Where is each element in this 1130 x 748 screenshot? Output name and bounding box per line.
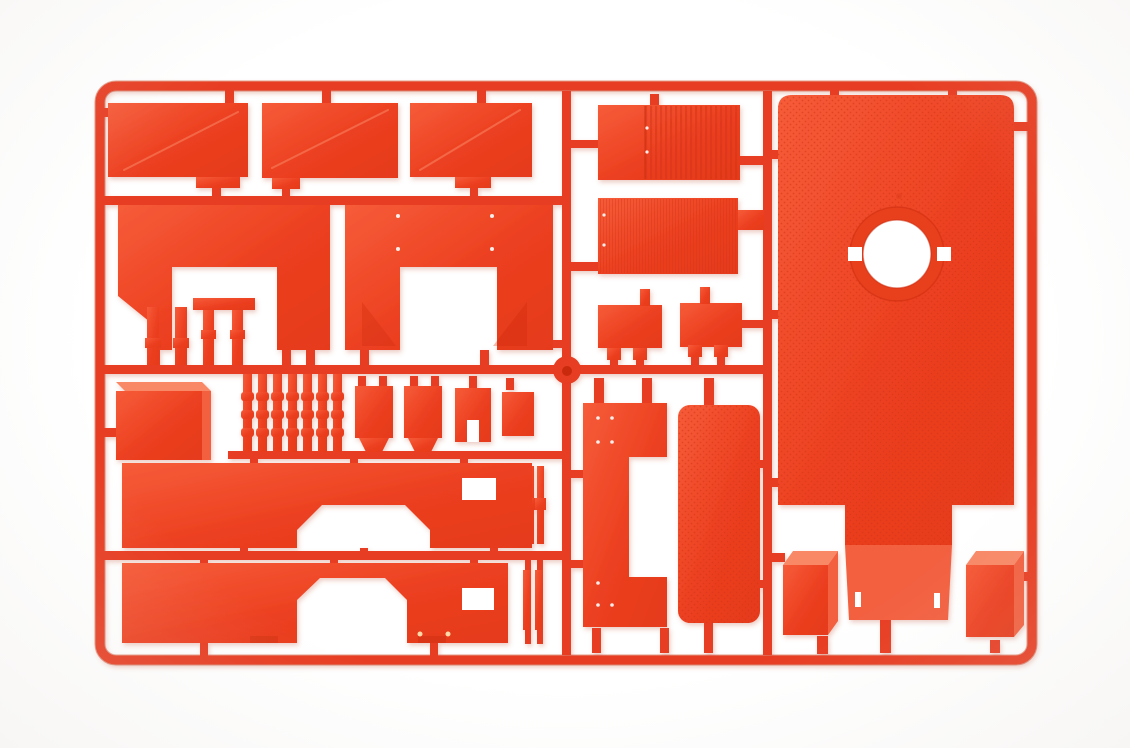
wall-rivet-hole <box>490 247 494 251</box>
gate-stub <box>506 378 514 390</box>
crate-left-front <box>783 565 828 635</box>
comb-bumps <box>316 392 329 401</box>
clip-1-slot <box>467 420 479 442</box>
gate-stub <box>553 340 562 348</box>
rod <box>535 570 543 630</box>
gate-stub <box>282 188 290 196</box>
wall-rivet-hole <box>396 214 400 218</box>
gate-stub <box>772 310 779 319</box>
panel-dimple <box>896 193 902 199</box>
gate-stub <box>765 553 785 562</box>
crate-left-side <box>828 551 838 635</box>
gate-stub <box>704 378 714 405</box>
u-bracket-bar <box>193 298 255 310</box>
comb-bumps <box>301 392 314 401</box>
gate-stub <box>431 376 439 386</box>
comb-bumps <box>256 428 269 437</box>
gate-stub <box>469 376 477 388</box>
gate-stub <box>571 470 583 478</box>
small-stand-2-foot <box>714 345 728 357</box>
gate-stub <box>525 560 531 570</box>
gate-stub <box>430 643 438 657</box>
bracket-1-foot <box>359 438 389 452</box>
panel-hole <box>596 581 600 585</box>
gate-stub <box>306 350 315 365</box>
panel-hole <box>645 126 648 129</box>
hanger-post-bump <box>173 338 189 348</box>
hanger-post <box>147 307 159 365</box>
gate-stub <box>537 630 543 644</box>
panel-hole <box>602 213 605 216</box>
gate-stub <box>772 150 779 159</box>
runner-horizontal-comb <box>228 451 564 459</box>
gate-stub <box>740 156 763 165</box>
bracket-2 <box>404 386 442 438</box>
roof-panel-3-tab <box>455 177 491 188</box>
comb-bumps <box>331 428 344 437</box>
wall-foot-ridge <box>418 636 446 643</box>
gate-stub <box>477 90 486 103</box>
crate-box-side <box>202 391 211 460</box>
gate-stub <box>470 188 478 196</box>
ring-notch <box>937 247 951 261</box>
rod-bump <box>535 498 546 510</box>
panel-hole <box>596 416 600 420</box>
comb-bumps <box>331 410 344 419</box>
gate-stub <box>571 560 583 568</box>
comb-bumps <box>286 428 299 437</box>
crate-right-front <box>966 565 1014 637</box>
gate-stub <box>212 187 221 196</box>
windshield-slot <box>934 593 940 608</box>
wall-rivet-hole <box>396 247 400 251</box>
gate-stub <box>650 94 659 105</box>
hanger-post <box>175 307 187 365</box>
gate-stub <box>525 630 531 644</box>
wall-foot-ridge <box>250 636 278 643</box>
shutter-door-divider <box>644 106 646 179</box>
small-stand-1-post <box>640 289 650 306</box>
lower-wall-2 <box>122 563 508 643</box>
small-stand-2-foot <box>688 345 702 357</box>
gate-stub <box>772 478 779 487</box>
gate-stub <box>410 376 418 386</box>
gate-stub <box>537 560 543 570</box>
gate-stub <box>592 628 601 653</box>
photo-canvas <box>0 0 1130 748</box>
panel-hole <box>596 440 600 444</box>
gate-stub <box>880 620 891 653</box>
small-stand-2 <box>680 303 742 347</box>
gate-stub <box>480 350 489 365</box>
panel-hole <box>602 243 605 246</box>
gate-stub <box>360 350 369 365</box>
small-stand-1-foot <box>633 348 647 360</box>
comb-bumps <box>241 410 254 419</box>
gate-stub <box>282 350 291 365</box>
windshield-slot <box>855 592 861 607</box>
panel-hole <box>610 603 614 607</box>
crate-right-top <box>966 551 1024 565</box>
ring-notch <box>848 247 862 261</box>
small-stand-1-foot <box>607 348 621 360</box>
comb-bumps <box>331 392 344 401</box>
sprue-group <box>100 86 1032 660</box>
gate-stub <box>742 320 763 328</box>
gate-stub <box>704 623 713 653</box>
runner-horizontal-middle <box>104 365 765 374</box>
paint-dot <box>446 632 451 637</box>
gate-stub <box>322 90 331 103</box>
gate-stub <box>379 376 387 386</box>
comb-bumps <box>256 392 269 401</box>
panel-hole <box>610 440 614 444</box>
u-bracket-bump <box>201 330 216 339</box>
gate-stub <box>642 378 652 404</box>
lower-wall-1-window <box>462 478 496 500</box>
bracket-2-foot <box>408 438 438 452</box>
roof-panel-2-tab <box>272 178 300 189</box>
comb-bumps <box>271 392 284 401</box>
gate-stub <box>817 636 828 654</box>
comb-bumps <box>316 410 329 419</box>
c-shaped-panel <box>583 403 667 627</box>
gate-stub <box>225 90 234 103</box>
clip-2 <box>502 392 534 436</box>
u-bracket-bump <box>230 330 245 339</box>
gate-stub <box>1014 122 1028 131</box>
roof-panel-1 <box>108 103 248 177</box>
gate-stub <box>990 640 1000 653</box>
bracket-1 <box>355 386 393 438</box>
comb-bumps <box>241 428 254 437</box>
roof-panel-1-tab <box>196 177 240 188</box>
big-door-panel-texture <box>778 95 1014 545</box>
small-stand-2-post <box>700 287 710 304</box>
rod <box>523 570 531 630</box>
comb-bumps <box>286 410 299 419</box>
crate-box-top <box>116 382 211 391</box>
gate-stub <box>360 548 368 556</box>
windshield-panel <box>845 545 952 620</box>
sprue-gate-ring-center <box>562 366 572 376</box>
panel-hole <box>596 603 600 607</box>
gate-stub <box>594 378 604 404</box>
lower-wall-2-window <box>462 588 494 610</box>
gate-stub <box>571 140 598 148</box>
shutter-door-ribs <box>645 106 739 179</box>
gate-stub <box>240 548 248 556</box>
ribbed-panel-step-tab <box>738 210 764 230</box>
gate-stub <box>104 428 116 437</box>
small-stand-1 <box>598 305 662 348</box>
comb-bumps <box>316 428 329 437</box>
comb-bumps <box>271 428 284 437</box>
ribbed-panel-ribs <box>600 199 737 273</box>
crate-right-side <box>1014 551 1024 637</box>
comb-bumps <box>301 410 314 419</box>
lower-wall-1 <box>122 463 532 548</box>
paint-dot <box>418 632 423 637</box>
gate-stub <box>660 628 669 653</box>
comb-bumps <box>286 392 299 401</box>
gate-stub <box>358 376 366 386</box>
tall-canvas-panel-texture <box>678 405 760 623</box>
comb-bumps <box>301 428 314 437</box>
sprue-photo <box>0 0 1130 748</box>
gate-stub <box>200 643 208 657</box>
comb-bumps <box>256 410 269 419</box>
wall-rivet-hole <box>490 214 494 218</box>
panel-hole <box>610 416 614 420</box>
hanger-post-bump <box>145 338 161 348</box>
gate-stub <box>571 262 598 271</box>
crate-box-front <box>116 391 202 460</box>
comb-bumps <box>241 392 254 401</box>
comb-bumps <box>271 410 284 419</box>
gate-stub <box>490 548 498 556</box>
runner-horizontal-top <box>104 196 564 205</box>
panel-hole <box>645 150 648 153</box>
